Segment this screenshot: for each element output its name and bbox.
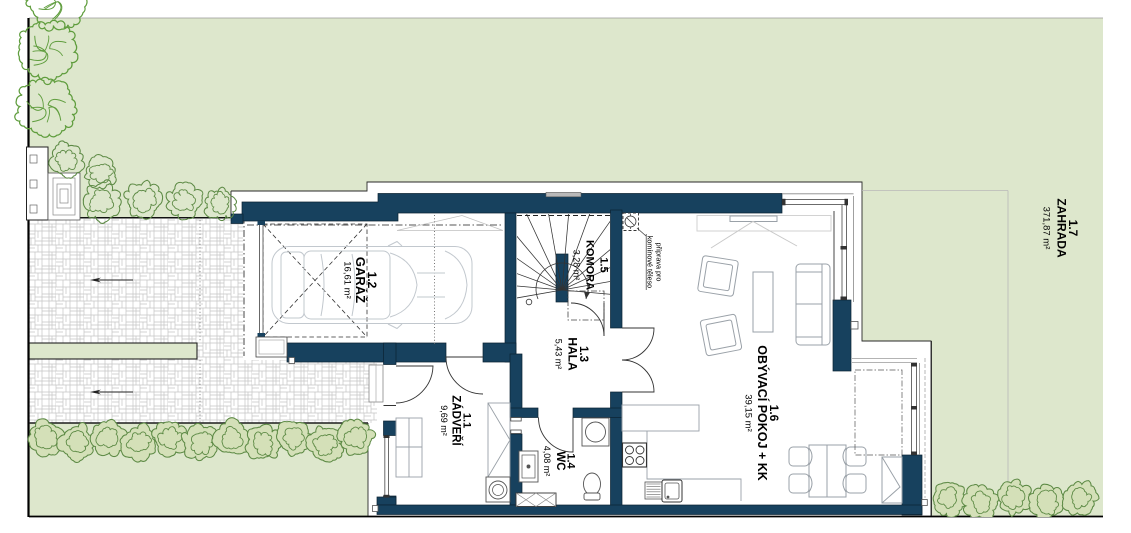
svg-text:KOMORA: KOMORA: [584, 240, 596, 290]
svg-text:GARÁŽ: GARÁŽ: [353, 257, 368, 303]
svg-text:příprava pro: příprava pro: [655, 243, 664, 282]
svg-text:komínové těleso: komínové těleso: [646, 236, 655, 288]
svg-text:ZAHRADA: ZAHRADA: [1055, 198, 1069, 258]
svg-text:1.5: 1.5: [598, 257, 610, 272]
svg-text:HALA: HALA: [566, 337, 580, 371]
svg-text:4,08 m²: 4,08 m²: [542, 446, 552, 477]
svg-text:5,43 m²: 5,43 m²: [553, 339, 563, 370]
svg-text:ZÁDVEŘÍ: ZÁDVEŘÍ: [449, 395, 462, 446]
svg-text:16,61 m²: 16,61 m²: [341, 261, 352, 299]
svg-text:9,69 m²: 9,69 m²: [439, 405, 449, 436]
svg-text:371,87 m²: 371,87 m²: [1041, 207, 1052, 250]
svg-text:3,28 m²: 3,28 m²: [571, 250, 581, 281]
svg-text:39,15 m²: 39,15 m²: [743, 394, 754, 432]
svg-text:WC: WC: [554, 451, 566, 470]
svg-text:OBÝVACÍ POKOJ + KK: OBÝVACÍ POKOJ + KK: [755, 345, 770, 481]
